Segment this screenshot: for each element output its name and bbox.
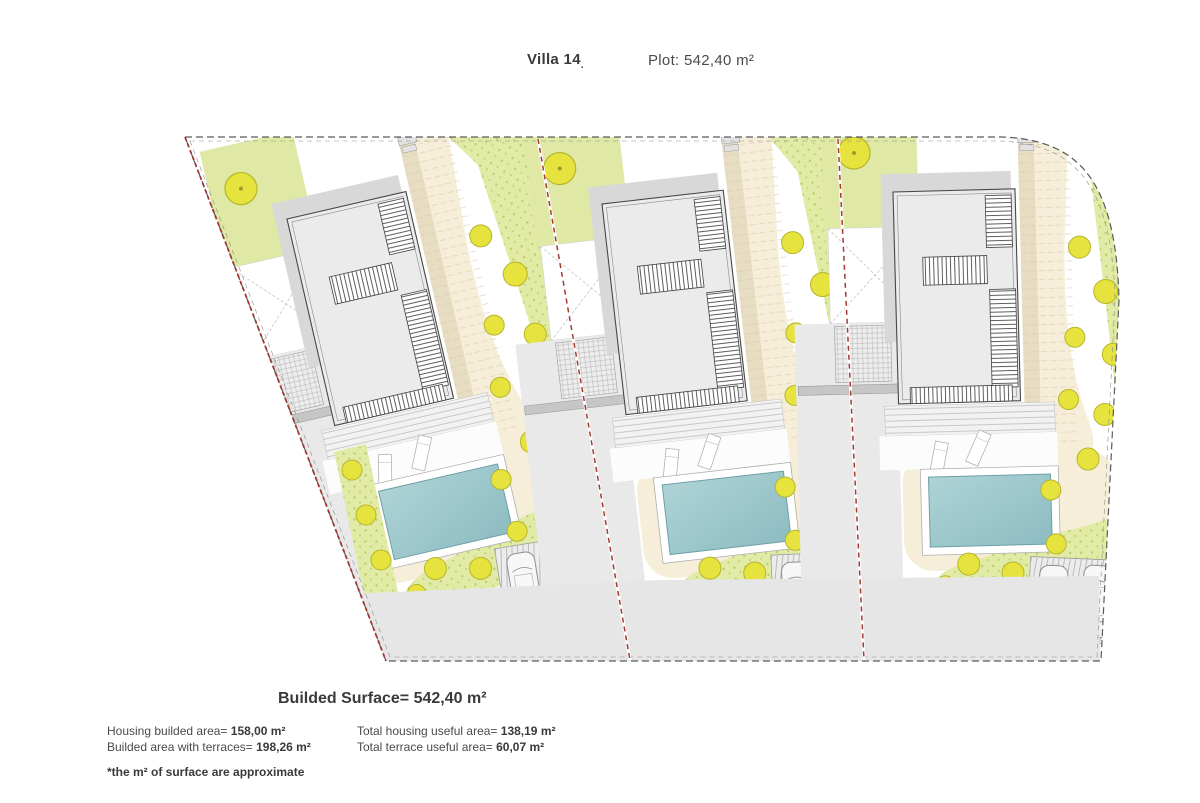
stats-left-column: Housing builded area= 158,00 m² Builded …	[107, 723, 311, 755]
stat-label: Builded area with terraces=	[107, 740, 253, 754]
stat-value: 138,19 m²	[501, 724, 556, 738]
stat-value: 158,00 m²	[231, 724, 286, 738]
stat-label: Total housing useful area=	[357, 724, 497, 738]
stat-line: Total housing useful area= 138,19 m²	[357, 723, 555, 739]
site-plan-svg	[0, 0, 1200, 803]
stat-line: Total terrace useful area= 60,07 m²	[357, 739, 555, 755]
stat-value: 60,07 m²	[496, 740, 544, 754]
built-surface-value: 542,40 m²	[414, 690, 487, 707]
stat-label: Housing builded area=	[107, 724, 227, 738]
stat-line: Housing builded area= 158,00 m²	[107, 723, 311, 739]
stats-right-column: Total housing useful area= 138,19 m² Tot…	[357, 723, 555, 755]
stat-value: 198,26 m²	[256, 740, 311, 754]
footnote: *the m² of surface are approximate	[107, 765, 304, 779]
plot-contents	[150, 77, 1163, 700]
stat-label: Total terrace useful area=	[357, 740, 493, 754]
built-surface-title: Builded Surface= 542,40 m²	[278, 690, 487, 708]
built-surface-label: Builded Surface=	[278, 690, 409, 707]
stat-line: Builded area with terraces= 198,26 m²	[107, 739, 311, 755]
site-plan-page: Villa 14. Plot: 542,40 m² nk	[0, 0, 1200, 803]
